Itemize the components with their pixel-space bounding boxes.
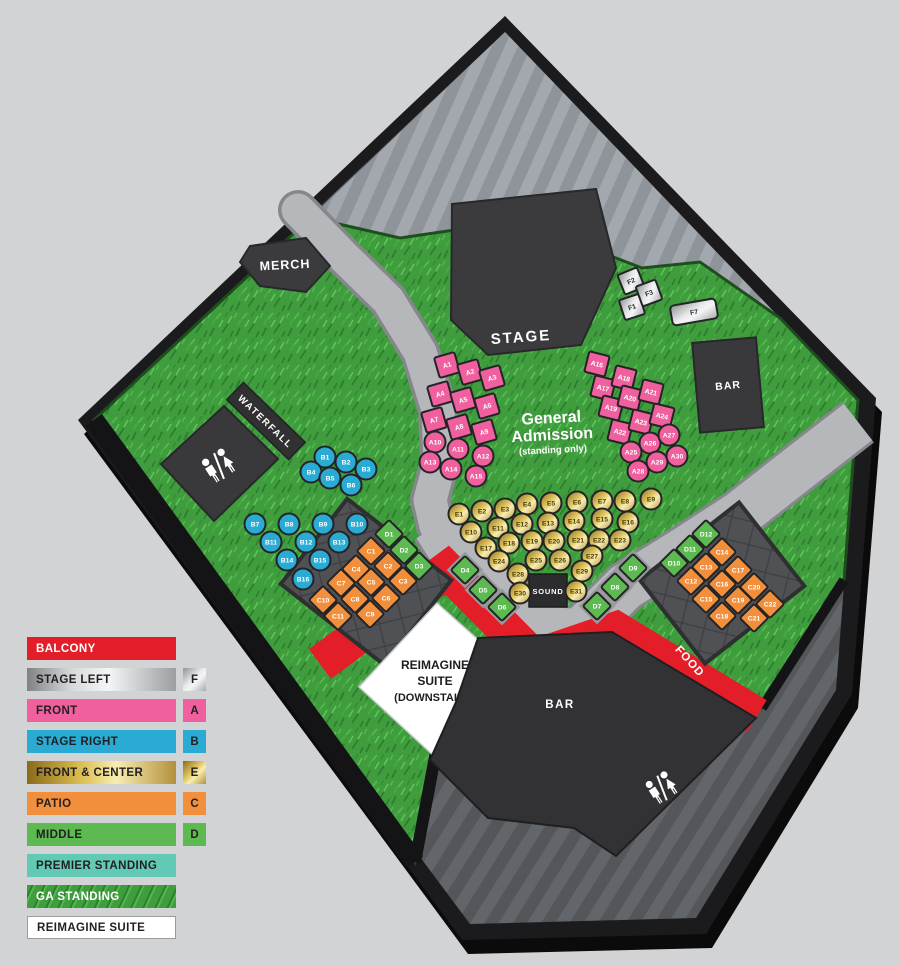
svg-text:E31: E31 xyxy=(570,588,582,595)
svg-text:C16: C16 xyxy=(716,581,729,588)
legend-row-stage-left: STAGE LEFTF xyxy=(27,668,257,691)
svg-text:C8: C8 xyxy=(351,596,360,603)
venue-map-page: REIMAGINE SUITE (DOWNSTAIRS) BALCONY FOO… xyxy=(0,0,900,965)
svg-text:D2: D2 xyxy=(400,547,409,554)
seat-A30[interactable]: A30 xyxy=(667,446,688,467)
seat-E5[interactable]: E5 xyxy=(541,493,562,514)
legend-swatch: PATIO xyxy=(27,792,176,815)
seat-B10[interactable]: B10 xyxy=(347,514,368,535)
svg-text:E21: E21 xyxy=(572,537,584,544)
legend-row-ga-standing: GA STANDING xyxy=(27,885,257,908)
svg-text:B12: B12 xyxy=(300,539,313,546)
sound-booth: SOUND xyxy=(529,574,567,607)
seat-B2[interactable]: B2 xyxy=(336,452,357,473)
svg-text:C21: C21 xyxy=(748,615,761,622)
svg-text:C18: C18 xyxy=(716,613,729,620)
svg-text:E1: E1 xyxy=(455,511,464,518)
seat-E19[interactable]: E19 xyxy=(522,531,543,552)
seat-A14[interactable]: A14 xyxy=(441,459,462,480)
seat-B6[interactable]: B6 xyxy=(341,475,362,496)
seat-E15[interactable]: E15 xyxy=(592,509,613,530)
legend-row-reimagine-suite: REIMAGINE SUITE xyxy=(27,916,257,939)
svg-text:B8: B8 xyxy=(285,521,294,528)
seat-B9[interactable]: B9 xyxy=(313,514,334,535)
seat-B5[interactable]: B5 xyxy=(320,468,341,489)
svg-text:E13: E13 xyxy=(542,520,554,527)
svg-text:C2: C2 xyxy=(384,563,393,570)
svg-text:A11: A11 xyxy=(452,446,464,453)
seat-A10[interactable]: A10 xyxy=(425,432,446,453)
legend-row-patio: PATIOC xyxy=(27,792,257,815)
svg-text:D6: D6 xyxy=(498,604,507,611)
svg-text:E19: E19 xyxy=(526,538,538,545)
legend-chip-A: A xyxy=(183,699,206,722)
seat-A9[interactable]: A9 xyxy=(471,419,497,445)
svg-text:D8: D8 xyxy=(611,584,620,591)
svg-text:C17: C17 xyxy=(732,567,745,574)
legend-swatch: REIMAGINE SUITE xyxy=(27,916,176,939)
seat-A15[interactable]: A15 xyxy=(466,466,487,487)
seat-B8[interactable]: B8 xyxy=(279,514,300,535)
svg-text:B11: B11 xyxy=(265,539,277,546)
svg-text:B7: B7 xyxy=(251,521,260,528)
seat-B3[interactable]: B3 xyxy=(356,459,377,480)
svg-text:E16: E16 xyxy=(622,519,634,526)
legend-row-premier-standing: PREMIER STANDING xyxy=(27,854,257,877)
svg-text:D7: D7 xyxy=(593,603,602,610)
seat-E26[interactable]: E26 xyxy=(550,550,571,571)
svg-text:C22: C22 xyxy=(764,601,777,608)
svg-text:B1: B1 xyxy=(321,454,330,461)
svg-text:E9: E9 xyxy=(647,496,656,503)
seat-E31[interactable]: E31 xyxy=(566,581,587,602)
seat-A11[interactable]: A11 xyxy=(448,439,469,460)
svg-text:C15: C15 xyxy=(700,596,713,603)
seat-A28[interactable]: A28 xyxy=(628,461,649,482)
svg-text:E6: E6 xyxy=(573,499,582,506)
svg-text:E17: E17 xyxy=(480,545,492,552)
legend-swatch: MIDDLE xyxy=(27,823,176,846)
svg-text:E7: E7 xyxy=(598,498,607,505)
svg-text:C6: C6 xyxy=(382,595,391,602)
svg-text:B9: B9 xyxy=(319,521,328,528)
svg-text:E12: E12 xyxy=(516,521,528,528)
svg-text:A25: A25 xyxy=(625,449,638,456)
svg-text:E18: E18 xyxy=(503,540,515,547)
svg-text:E28: E28 xyxy=(512,571,524,578)
svg-text:D5: D5 xyxy=(479,587,488,594)
seat-A6[interactable]: A6 xyxy=(474,393,500,419)
bar-stage-label: BAR xyxy=(715,379,742,393)
legend-row-front-center: FRONT & CENTERE xyxy=(27,761,257,784)
seat-A21[interactable]: A21 xyxy=(638,379,663,404)
legend-chip-F: F xyxy=(183,668,206,691)
seat-A25[interactable]: A25 xyxy=(621,442,642,463)
svg-text:E10: E10 xyxy=(465,529,477,536)
svg-text:C20: C20 xyxy=(748,584,761,591)
seat-E29[interactable]: E29 xyxy=(572,561,593,582)
svg-text:A27: A27 xyxy=(663,432,676,439)
svg-text:A13: A13 xyxy=(424,459,437,466)
seat-B14[interactable]: B14 xyxy=(277,550,298,571)
svg-text:A14: A14 xyxy=(445,466,458,473)
seat-E3[interactable]: E3 xyxy=(495,499,516,520)
svg-text:E29: E29 xyxy=(576,568,588,575)
seat-A16[interactable]: A16 xyxy=(584,351,609,376)
legend: BALCONYSTAGE LEFTFFRONTASTAGE RIGHTBFRON… xyxy=(27,637,257,947)
legend-row-front: FRONTA xyxy=(27,699,257,722)
svg-text:C1: C1 xyxy=(367,548,376,555)
svg-text:E24: E24 xyxy=(493,558,505,565)
svg-text:B6: B6 xyxy=(347,482,356,489)
seat-E28[interactable]: E28 xyxy=(508,564,529,585)
seat-E9[interactable]: E9 xyxy=(641,489,662,510)
seat-B4[interactable]: B4 xyxy=(301,462,322,483)
svg-text:C9: C9 xyxy=(366,611,375,618)
legend-row-stage-right: STAGE RIGHTB xyxy=(27,730,257,753)
svg-text:B13: B13 xyxy=(333,539,346,546)
svg-text:D1: D1 xyxy=(385,531,394,538)
seat-A13[interactable]: A13 xyxy=(420,452,441,473)
svg-text:A28: A28 xyxy=(632,468,645,475)
seat-A29[interactable]: A29 xyxy=(647,452,668,473)
svg-text:A10: A10 xyxy=(429,439,442,446)
svg-text:E22: E22 xyxy=(593,537,605,544)
seat-A3[interactable]: A3 xyxy=(479,365,505,391)
svg-text:E11: E11 xyxy=(492,525,504,532)
svg-text:E27: E27 xyxy=(586,553,598,560)
legend-chip-D: D xyxy=(183,823,206,846)
legend-swatch: STAGE RIGHT xyxy=(27,730,176,753)
svg-text:C12: C12 xyxy=(685,578,698,585)
svg-text:A29: A29 xyxy=(651,459,664,466)
legend-swatch: FRONT xyxy=(27,699,176,722)
svg-text:C7: C7 xyxy=(337,580,346,587)
seat-B13[interactable]: B13 xyxy=(329,532,350,553)
legend-chip-B: B xyxy=(183,730,206,753)
svg-text:C10: C10 xyxy=(317,597,330,604)
svg-text:E23: E23 xyxy=(614,537,626,544)
seat-E8[interactable]: E8 xyxy=(615,491,636,512)
svg-text:C3: C3 xyxy=(399,578,408,585)
seat-E23[interactable]: E23 xyxy=(610,530,631,551)
legend-swatch: GA STANDING xyxy=(27,885,176,908)
seat-E4[interactable]: E4 xyxy=(517,494,538,515)
seat-E24[interactable]: E24 xyxy=(489,551,510,572)
seat-E10[interactable]: E10 xyxy=(461,522,482,543)
svg-text:E3: E3 xyxy=(501,506,510,513)
legend-chip-E: E xyxy=(183,761,206,784)
svg-text:B10: B10 xyxy=(351,521,364,528)
svg-text:E25: E25 xyxy=(530,557,542,564)
sound-label: SOUND xyxy=(532,587,563,596)
seat-E14[interactable]: E14 xyxy=(564,511,585,532)
seat-A26[interactable]: A26 xyxy=(640,433,661,454)
svg-text:C13: C13 xyxy=(700,564,713,571)
svg-text:C14: C14 xyxy=(716,549,729,556)
seat-B12[interactable]: B12 xyxy=(296,532,317,553)
svg-text:F7: F7 xyxy=(690,309,699,317)
bar-stage-building: BAR xyxy=(692,337,764,432)
svg-text:A15: A15 xyxy=(470,473,483,480)
seat-A7[interactable]: A7 xyxy=(421,407,447,433)
seat-E1[interactable]: E1 xyxy=(449,504,470,525)
svg-text:B16: B16 xyxy=(297,576,310,583)
svg-text:E2: E2 xyxy=(478,508,487,515)
svg-text:A26: A26 xyxy=(644,440,657,447)
seat-E2[interactable]: E2 xyxy=(472,501,493,522)
svg-text:D10: D10 xyxy=(668,560,681,567)
seat-E25[interactable]: E25 xyxy=(526,550,547,571)
legend-swatch: BALCONY xyxy=(27,637,176,660)
seat-A1[interactable]: A1 xyxy=(434,352,460,378)
svg-text:A12: A12 xyxy=(477,453,490,460)
svg-text:D4: D4 xyxy=(461,567,470,574)
legend-swatch: FRONT & CENTER xyxy=(27,761,176,784)
seat-A8[interactable]: A8 xyxy=(446,414,472,440)
legend-swatch: PREMIER STANDING xyxy=(27,854,176,877)
seat-B11[interactable]: B11 xyxy=(261,532,282,553)
seat-B16[interactable]: B16 xyxy=(293,569,314,590)
svg-text:E15: E15 xyxy=(596,516,608,523)
svg-text:B15: B15 xyxy=(314,557,327,564)
seat-E20[interactable]: E20 xyxy=(544,531,565,552)
suite-label-1: REIMAGINE xyxy=(401,658,469,672)
seat-A27[interactable]: A27 xyxy=(659,425,680,446)
svg-text:E14: E14 xyxy=(568,518,580,525)
suite-label-2: SUITE xyxy=(417,674,452,688)
seat-E30[interactable]: E30 xyxy=(510,583,531,604)
seat-A12[interactable]: A12 xyxy=(473,446,494,467)
seat-E6[interactable]: E6 xyxy=(567,492,588,513)
svg-text:E26: E26 xyxy=(554,557,566,564)
svg-text:C5: C5 xyxy=(367,579,376,586)
legend-chip-C: C xyxy=(183,792,206,815)
seat-A5[interactable]: A5 xyxy=(450,387,476,413)
svg-text:A30: A30 xyxy=(671,453,684,460)
svg-text:D3: D3 xyxy=(415,563,424,570)
svg-text:C19: C19 xyxy=(732,597,745,604)
svg-text:B2: B2 xyxy=(342,459,351,466)
seat-B7[interactable]: B7 xyxy=(245,514,266,535)
svg-text:B4: B4 xyxy=(307,469,316,476)
merch-label: MERCH xyxy=(259,257,311,274)
svg-text:D12: D12 xyxy=(700,531,713,538)
svg-text:C4: C4 xyxy=(352,566,361,573)
svg-text:B3: B3 xyxy=(362,466,371,473)
svg-text:B14: B14 xyxy=(281,557,294,564)
svg-text:C11: C11 xyxy=(332,613,344,620)
seat-B15[interactable]: B15 xyxy=(310,550,331,571)
svg-text:E30: E30 xyxy=(514,590,526,597)
legend-swatch: STAGE LEFT xyxy=(27,668,176,691)
bar-main-label: BAR xyxy=(545,699,574,711)
svg-text:D9: D9 xyxy=(629,565,638,572)
svg-text:E20: E20 xyxy=(548,538,560,545)
svg-text:D11: D11 xyxy=(684,546,696,553)
svg-text:E8: E8 xyxy=(621,498,630,505)
svg-text:E4: E4 xyxy=(523,501,532,508)
seat-A4[interactable]: A4 xyxy=(427,381,453,407)
svg-text:E5: E5 xyxy=(547,500,556,507)
legend-row-middle: MIDDLED xyxy=(27,823,257,846)
legend-row-balcony: BALCONY xyxy=(27,637,257,660)
svg-text:B5: B5 xyxy=(326,475,335,482)
